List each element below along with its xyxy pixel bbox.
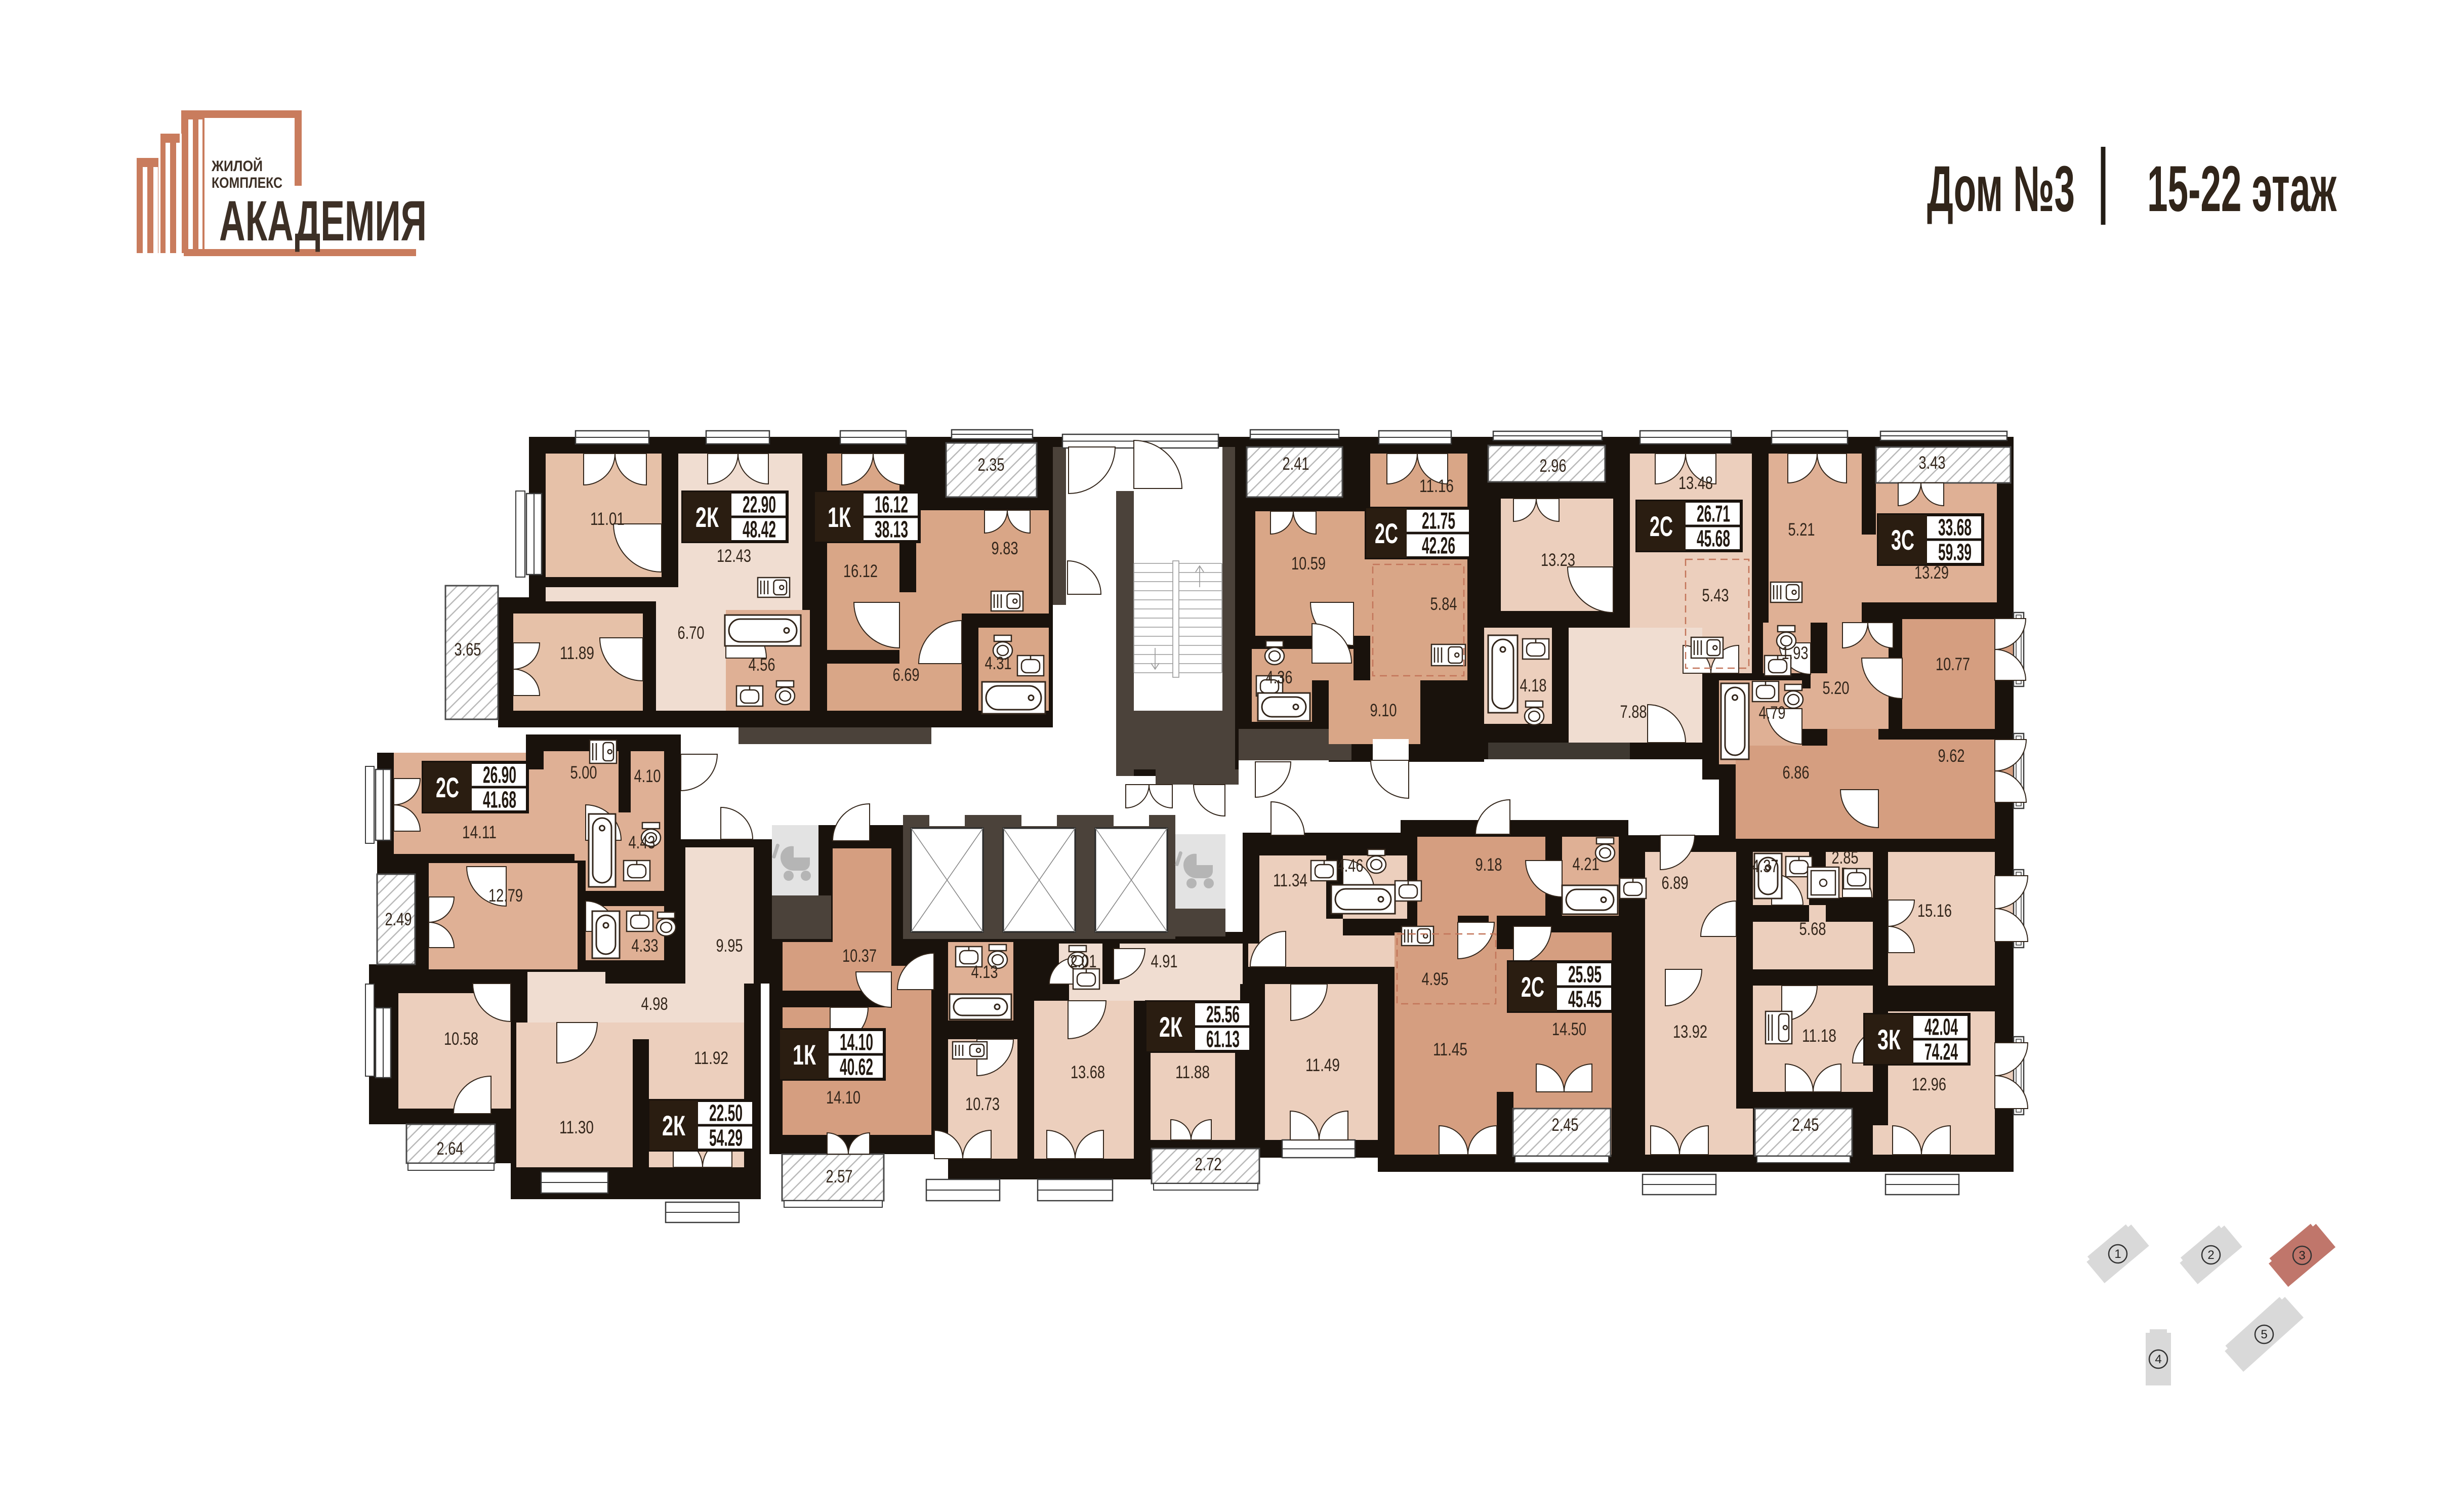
svg-text:16.12: 16.12 — [875, 492, 908, 518]
svg-text:11.16: 11.16 — [1419, 476, 1454, 496]
svg-text:2.96: 2.96 — [1540, 456, 1567, 476]
svg-text:4.91: 4.91 — [1151, 952, 1178, 971]
svg-text:7.88: 7.88 — [1620, 702, 1647, 722]
svg-text:2.45: 2.45 — [1792, 1115, 1819, 1135]
svg-text:12.79: 12.79 — [488, 886, 523, 906]
svg-text:14.10: 14.10 — [840, 1029, 873, 1055]
svg-text:Дом №3: Дом №3 — [1927, 153, 2075, 225]
svg-text:ЖИЛОЙ: ЖИЛОЙ — [211, 157, 263, 175]
svg-text:11.18: 11.18 — [1802, 1026, 1836, 1046]
svg-text:26.71: 26.71 — [1697, 501, 1730, 527]
svg-text:4.98: 4.98 — [641, 994, 668, 1014]
svg-text:АКАДЕМИЯ: АКАДЕМИЯ — [219, 189, 427, 253]
svg-text:2.72: 2.72 — [1195, 1155, 1222, 1174]
svg-text:6.70: 6.70 — [678, 623, 705, 643]
svg-text:2.41: 2.41 — [1283, 454, 1309, 474]
svg-text:5.84: 5.84 — [1430, 594, 1457, 614]
svg-text:5.20: 5.20 — [1823, 678, 1850, 698]
svg-text:4: 4 — [2155, 1353, 2161, 1366]
svg-text:25.56: 25.56 — [1206, 1001, 1240, 1028]
svg-text:2.57: 2.57 — [826, 1167, 853, 1187]
svg-text:4.10: 4.10 — [634, 766, 661, 786]
svg-text:9.10: 9.10 — [1370, 701, 1397, 720]
svg-text:4.46: 4.46 — [1337, 856, 1364, 876]
svg-text:2: 2 — [2207, 1248, 2214, 1262]
svg-text:11.92: 11.92 — [694, 1048, 728, 1068]
svg-text:4.37: 4.37 — [1752, 856, 1779, 876]
svg-text:9.18: 9.18 — [1476, 855, 1502, 875]
svg-text:4.18: 4.18 — [1520, 676, 1547, 696]
svg-text:2.49: 2.49 — [385, 910, 412, 929]
svg-text:21.75: 21.75 — [1422, 508, 1455, 534]
svg-text:9.62: 9.62 — [1938, 746, 1965, 766]
svg-text:1.93: 1.93 — [1782, 643, 1809, 663]
svg-text:4.31: 4.31 — [985, 653, 1012, 673]
svg-text:61.13: 61.13 — [1206, 1026, 1240, 1052]
svg-text:3.43: 3.43 — [1919, 453, 1946, 473]
svg-text:11.30: 11.30 — [559, 1118, 594, 1137]
svg-text:33.68: 33.68 — [1938, 514, 1972, 541]
svg-text:4.21: 4.21 — [1573, 854, 1600, 874]
svg-text:9.95: 9.95 — [716, 936, 743, 956]
svg-text:11.89: 11.89 — [560, 643, 594, 663]
svg-text:45.45: 45.45 — [1568, 986, 1602, 1012]
svg-text:13.23: 13.23 — [1541, 550, 1575, 570]
svg-text:74.24: 74.24 — [1924, 1039, 1958, 1065]
svg-text:9.83: 9.83 — [992, 539, 1018, 558]
svg-text:15.16: 15.16 — [1917, 901, 1952, 921]
svg-text:59.39: 59.39 — [1938, 539, 1972, 565]
svg-text:13.92: 13.92 — [1673, 1022, 1707, 1042]
svg-text:2.85: 2.85 — [1832, 848, 1859, 868]
svg-text:2С: 2С — [1375, 517, 1398, 549]
svg-text:41.68: 41.68 — [483, 787, 516, 813]
svg-text:3: 3 — [2299, 1249, 2305, 1262]
svg-text:2.64: 2.64 — [437, 1139, 464, 1159]
svg-text:45.68: 45.68 — [1697, 525, 1730, 552]
svg-text:4.36: 4.36 — [1266, 668, 1293, 687]
svg-text:14.50: 14.50 — [1552, 1019, 1586, 1039]
svg-text:4.13: 4.13 — [971, 962, 998, 982]
svg-text:2К: 2К — [662, 1110, 686, 1141]
svg-text:4.43: 4.43 — [629, 833, 655, 852]
svg-text:25.95: 25.95 — [1568, 961, 1602, 988]
svg-text:10.58: 10.58 — [444, 1029, 478, 1049]
svg-text:11.34: 11.34 — [1273, 871, 1307, 890]
svg-text:3К: 3К — [1877, 1024, 1901, 1055]
svg-text:5.00: 5.00 — [570, 763, 597, 783]
svg-text:2.45: 2.45 — [1552, 1115, 1579, 1135]
svg-text:2К: 2К — [695, 501, 719, 533]
svg-text:3.65: 3.65 — [455, 640, 481, 660]
svg-text:12.96: 12.96 — [1912, 1075, 1946, 1094]
svg-text:11.45: 11.45 — [1433, 1040, 1467, 1059]
svg-text:4.79: 4.79 — [1759, 703, 1786, 723]
svg-text:42.26: 42.26 — [1422, 533, 1455, 559]
svg-text:5.68: 5.68 — [1799, 919, 1826, 939]
svg-text:5: 5 — [2261, 1328, 2267, 1341]
svg-text:11.88: 11.88 — [1175, 1063, 1210, 1082]
svg-text:10.59: 10.59 — [1291, 554, 1326, 574]
svg-text:14.11: 14.11 — [462, 823, 497, 842]
svg-text:12.43: 12.43 — [717, 546, 751, 566]
svg-text:15-22 этаж: 15-22 этаж — [2147, 153, 2337, 225]
svg-text:10.73: 10.73 — [965, 1094, 1000, 1114]
svg-text:42.04: 42.04 — [1924, 1014, 1958, 1040]
svg-text:6.86: 6.86 — [1783, 763, 1810, 783]
svg-text:48.42: 48.42 — [743, 516, 776, 543]
svg-text:5.21: 5.21 — [1788, 520, 1815, 540]
svg-text:11.49: 11.49 — [1305, 1055, 1340, 1075]
svg-text:22.90: 22.90 — [743, 492, 776, 518]
svg-text:2К: 2К — [1159, 1011, 1183, 1043]
svg-text:2С: 2С — [1521, 971, 1544, 1003]
svg-text:10.37: 10.37 — [842, 946, 877, 966]
svg-text:2.35: 2.35 — [978, 455, 1005, 475]
svg-text:1К: 1К — [793, 1039, 816, 1071]
svg-text:4.56: 4.56 — [749, 655, 775, 675]
svg-text:54.29: 54.29 — [709, 1125, 743, 1151]
svg-text:11.01: 11.01 — [590, 509, 625, 529]
svg-text:4.95: 4.95 — [1422, 969, 1449, 989]
svg-text:26.90: 26.90 — [483, 762, 516, 788]
svg-text:22.50: 22.50 — [709, 1100, 743, 1126]
svg-text:2.01: 2.01 — [1070, 952, 1097, 971]
svg-text:13.48: 13.48 — [1678, 473, 1713, 493]
svg-text:2С: 2С — [436, 771, 459, 803]
svg-text:4.33: 4.33 — [632, 936, 659, 956]
svg-text:6.89: 6.89 — [1662, 873, 1689, 893]
svg-text:1: 1 — [2114, 1247, 2121, 1261]
svg-text:10.77: 10.77 — [1936, 655, 1970, 674]
svg-text:3С: 3С — [1891, 524, 1914, 556]
svg-text:5.43: 5.43 — [1702, 586, 1729, 605]
svg-text:16.12: 16.12 — [843, 561, 878, 581]
svg-text:14.10: 14.10 — [826, 1088, 860, 1108]
svg-text:6.69: 6.69 — [893, 665, 920, 685]
svg-text:38.13: 38.13 — [875, 516, 908, 543]
svg-text:40.62: 40.62 — [840, 1054, 873, 1080]
svg-text:1К: 1К — [828, 501, 851, 533]
svg-text:2С: 2С — [1650, 510, 1673, 542]
svg-text:13.68: 13.68 — [1071, 1063, 1105, 1082]
